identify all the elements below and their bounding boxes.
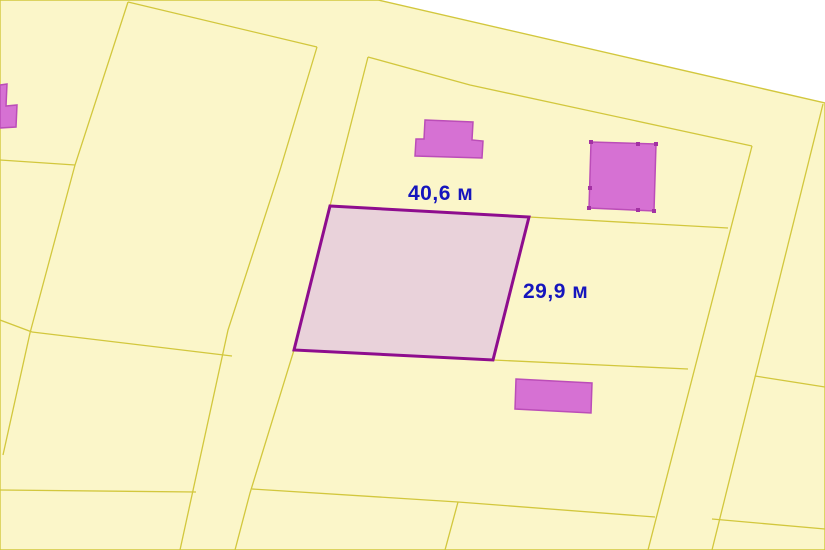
building-vertex-tick <box>654 142 658 146</box>
building-square[interactable] <box>589 142 656 211</box>
building-vertex-tick <box>588 186 592 190</box>
map-viewport[interactable]: 40,6 м 29,9 м <box>0 0 825 550</box>
building-vertex-tick <box>636 142 640 146</box>
building-vertex-tick <box>589 140 593 144</box>
selected-parcel[interactable] <box>294 206 529 360</box>
cadastral-map-canvas[interactable] <box>0 0 825 550</box>
building-small-rect[interactable] <box>515 379 592 413</box>
building-hat[interactable] <box>415 120 483 158</box>
building-vertex-tick <box>652 209 656 213</box>
building-vertex-tick <box>587 206 591 210</box>
building-vertex-tick <box>636 208 640 212</box>
